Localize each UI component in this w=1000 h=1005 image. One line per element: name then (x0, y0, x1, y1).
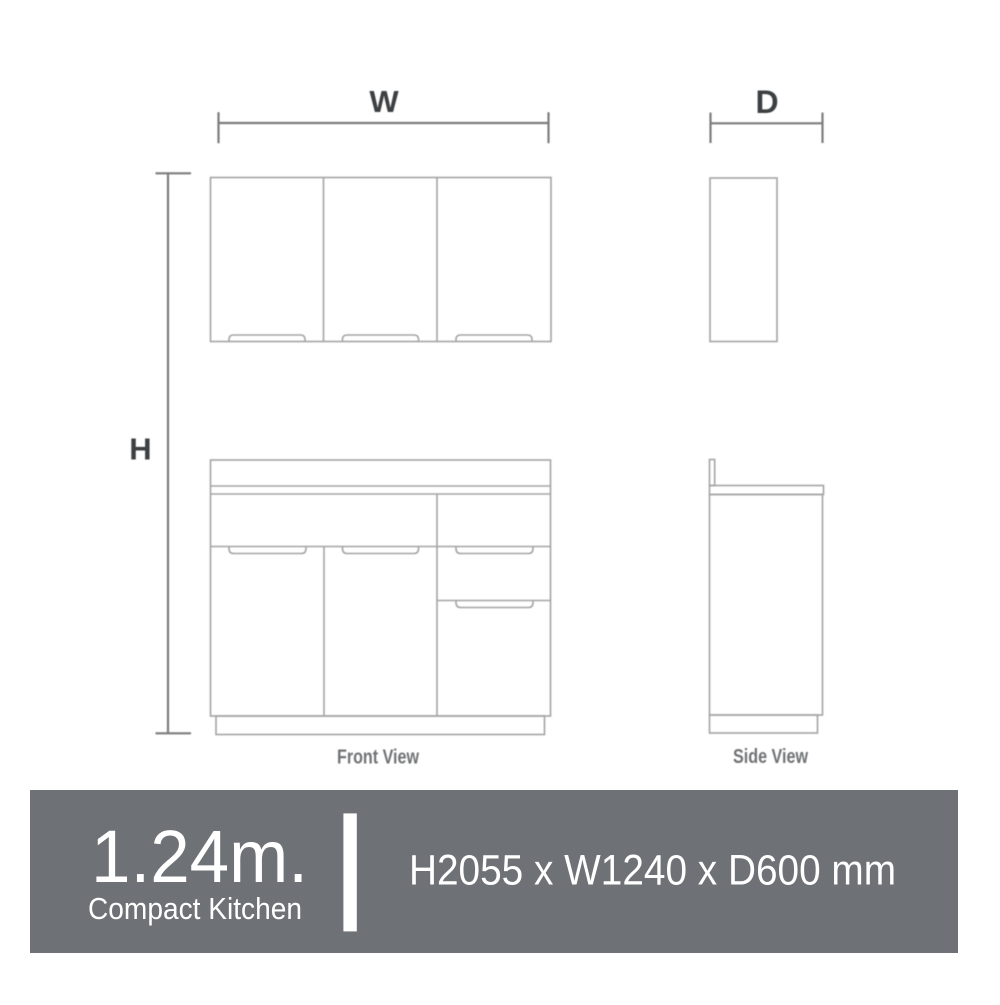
svg-text:Side View: Side View (733, 746, 808, 768)
svg-text:Compact Kitchen: Compact Kitchen (88, 891, 302, 926)
svg-text:Front View: Front View (337, 747, 419, 769)
svg-text:H: H (129, 432, 151, 467)
svg-text:H2055 x W1240 x D600 mm: H2055 x W1240 x D600 mm (409, 847, 896, 895)
svg-text:1.24m.: 1.24m. (91, 815, 308, 898)
svg-text:D: D (755, 84, 778, 120)
svg-text:W: W (369, 84, 399, 119)
